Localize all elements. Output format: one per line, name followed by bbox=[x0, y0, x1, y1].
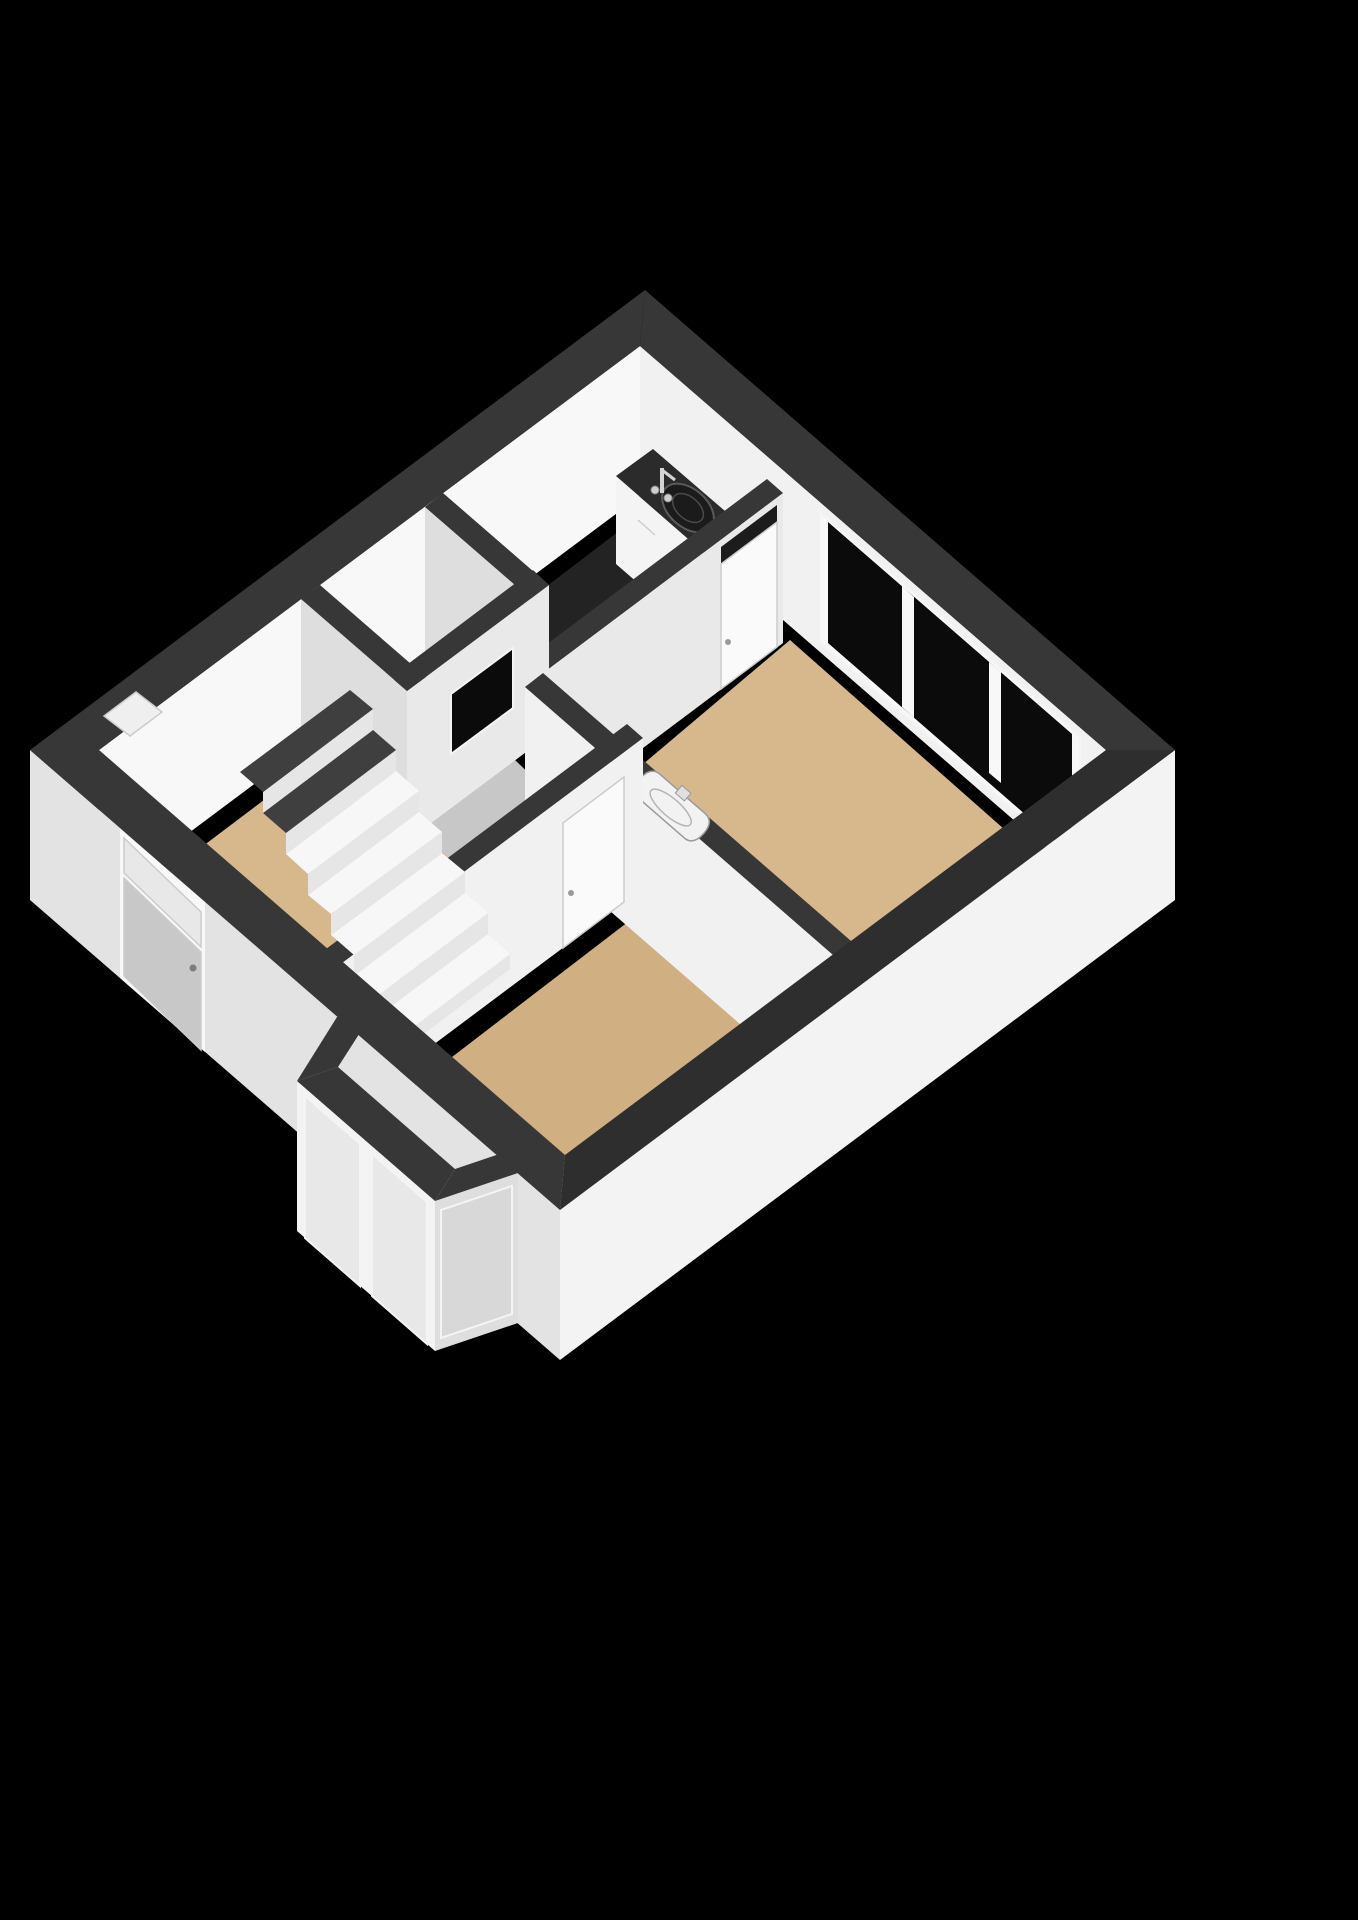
faucet-handle-2 bbox=[664, 494, 672, 502]
kitchen-door-handle bbox=[725, 639, 731, 645]
faucet-handle-1 bbox=[651, 486, 659, 494]
living-room-door-handle bbox=[568, 890, 574, 896]
floor-plan-canvas bbox=[0, 0, 1358, 1920]
main-window-mullion-2 bbox=[989, 662, 1001, 783]
floor-plan-3d bbox=[0, 0, 1358, 1920]
bay-right-glass bbox=[441, 1186, 512, 1338]
entrance-door-handle bbox=[190, 965, 197, 972]
main-window-mullion-1 bbox=[902, 586, 914, 718]
